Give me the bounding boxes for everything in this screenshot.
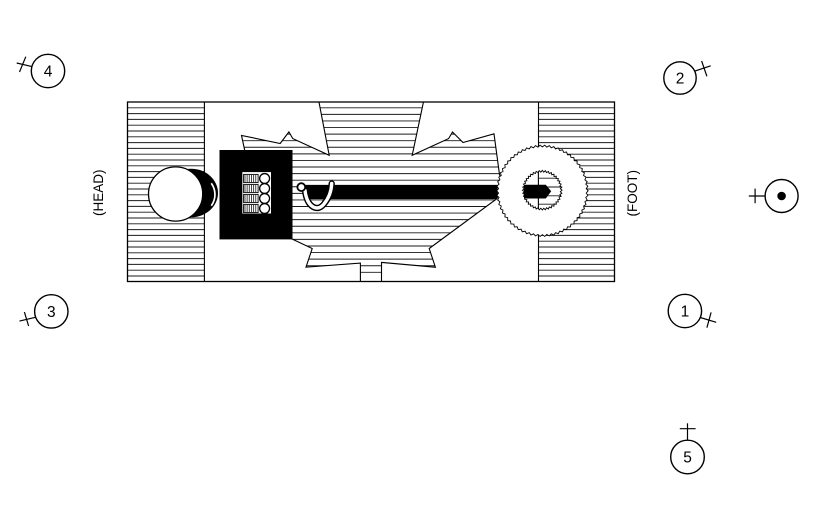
svg-text:2: 2	[676, 70, 685, 87]
svg-text:(FOOT): (FOOT)	[625, 170, 640, 217]
svg-text:1: 1	[681, 303, 690, 320]
svg-text:3: 3	[47, 304, 56, 321]
svg-text:(HEAD): (HEAD)	[91, 170, 106, 217]
svg-text:4: 4	[44, 63, 53, 80]
svg-text:5: 5	[683, 449, 692, 466]
